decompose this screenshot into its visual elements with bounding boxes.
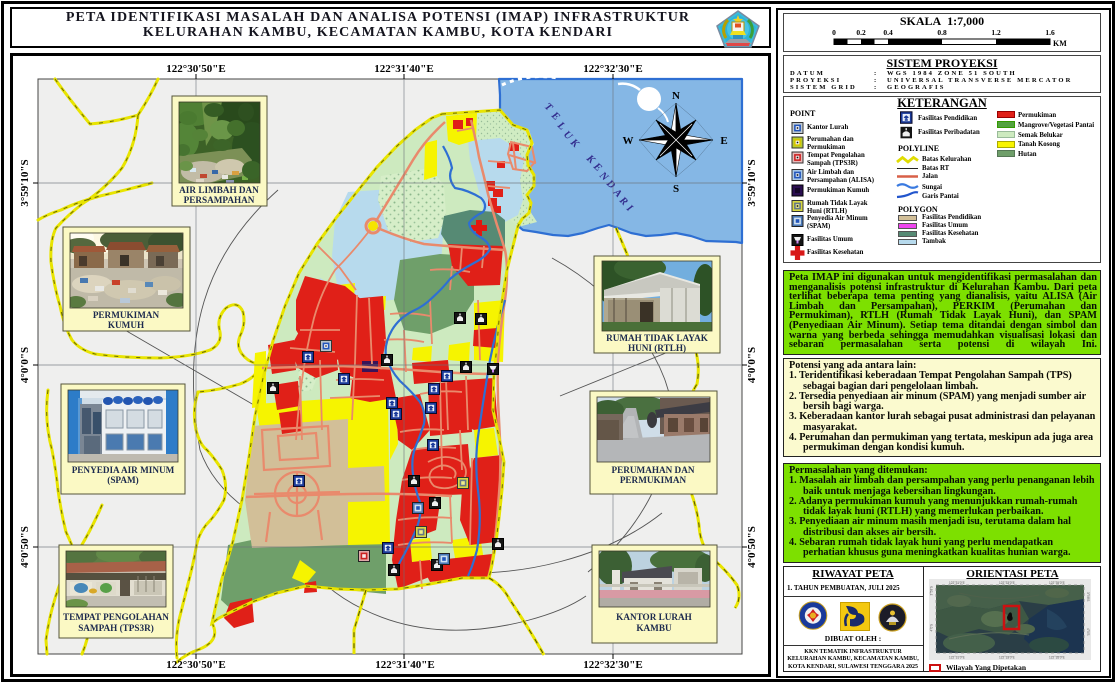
svg-text:KM: KM bbox=[1053, 39, 1067, 48]
svg-text:3°58'S: 3°58'S bbox=[1086, 592, 1090, 601]
svg-text:122°30'50"E: 122°30'50"E bbox=[166, 659, 225, 671]
svg-text:122°33'0"E: 122°33'0"E bbox=[999, 656, 1015, 660]
svg-text:S: S bbox=[673, 183, 679, 195]
svg-text:PERSAMPAHAN: PERSAMPAHAN bbox=[184, 195, 255, 205]
svg-text:(SPAM): (SPAM) bbox=[107, 475, 138, 485]
svg-text:4°0'50"S: 4°0'50"S bbox=[19, 526, 31, 568]
svg-text:PERMUKIMAN: PERMUKIMAN bbox=[93, 310, 160, 320]
svg-text:0.2: 0.2 bbox=[856, 28, 866, 37]
svg-text:N: N bbox=[672, 90, 680, 102]
svg-text:PERMUKIMAN: PERMUKIMAN bbox=[620, 475, 687, 485]
svg-text:W: W bbox=[623, 135, 634, 147]
svg-text:122°33'0"E: 122°33'0"E bbox=[999, 581, 1015, 585]
svg-text:HUNI (RTLH): HUNI (RTLH) bbox=[628, 343, 686, 353]
svg-text:3°59'10"S: 3°59'10"S bbox=[746, 159, 758, 206]
svg-text:PENYEDIA AIR MINUM: PENYEDIA AIR MINUM bbox=[72, 465, 175, 475]
svg-text:122°32'30"E: 122°32'30"E bbox=[583, 63, 642, 75]
svg-text:122°31'0"E: 122°31'0"E bbox=[949, 656, 965, 660]
svg-text:0.8: 0.8 bbox=[937, 28, 947, 37]
svg-text:122°35'0"E: 122°35'0"E bbox=[1049, 656, 1065, 660]
svg-text:4°0'S: 4°0'S bbox=[930, 624, 934, 632]
svg-text:4°0'0"S: 4°0'0"S bbox=[746, 347, 758, 383]
svg-text:3°59'10"S: 3°59'10"S bbox=[19, 159, 31, 206]
svg-text:KAMBU: KAMBU bbox=[636, 623, 672, 633]
svg-text:122°35'0"E: 122°35'0"E bbox=[1049, 581, 1065, 585]
svg-text:RUMAH TIDAK LAYAK: RUMAH TIDAK LAYAK bbox=[606, 333, 709, 343]
svg-text:122°31'40"E: 122°31'40"E bbox=[374, 63, 433, 75]
svg-text:4°0'S: 4°0'S bbox=[1086, 628, 1090, 636]
svg-text:KANTOR LURAH: KANTOR LURAH bbox=[616, 612, 692, 622]
svg-text:E: E bbox=[720, 135, 727, 147]
svg-text:PERUMAHAN DAN: PERUMAHAN DAN bbox=[612, 465, 695, 475]
svg-text:1.2: 1.2 bbox=[991, 28, 1001, 37]
svg-text:1.6: 1.6 bbox=[1045, 28, 1055, 37]
svg-text:122°31'40"E: 122°31'40"E bbox=[375, 659, 434, 671]
svg-text:122°30'50"E: 122°30'50"E bbox=[166, 63, 225, 75]
svg-text:122°31'0"E: 122°31'0"E bbox=[949, 581, 965, 585]
svg-text:122°32'30"E: 122°32'30"E bbox=[583, 659, 642, 671]
svg-text:0.4: 0.4 bbox=[883, 28, 893, 37]
svg-text:KUMUH: KUMUH bbox=[108, 320, 144, 330]
svg-text:4°0'50"S: 4°0'50"S bbox=[746, 526, 758, 568]
svg-text:TEMPAT PENGOLAHAN: TEMPAT PENGOLAHAN bbox=[63, 612, 169, 622]
svg-text:AIR LIMBAH DAN: AIR LIMBAH DAN bbox=[179, 185, 259, 195]
svg-text:3°58'S: 3°58'S bbox=[930, 586, 934, 595]
svg-text:SAMPAH (TPS3R): SAMPAH (TPS3R) bbox=[78, 623, 154, 633]
svg-text:0: 0 bbox=[832, 28, 836, 37]
svg-text:4°0'0"S: 4°0'0"S bbox=[19, 347, 31, 383]
